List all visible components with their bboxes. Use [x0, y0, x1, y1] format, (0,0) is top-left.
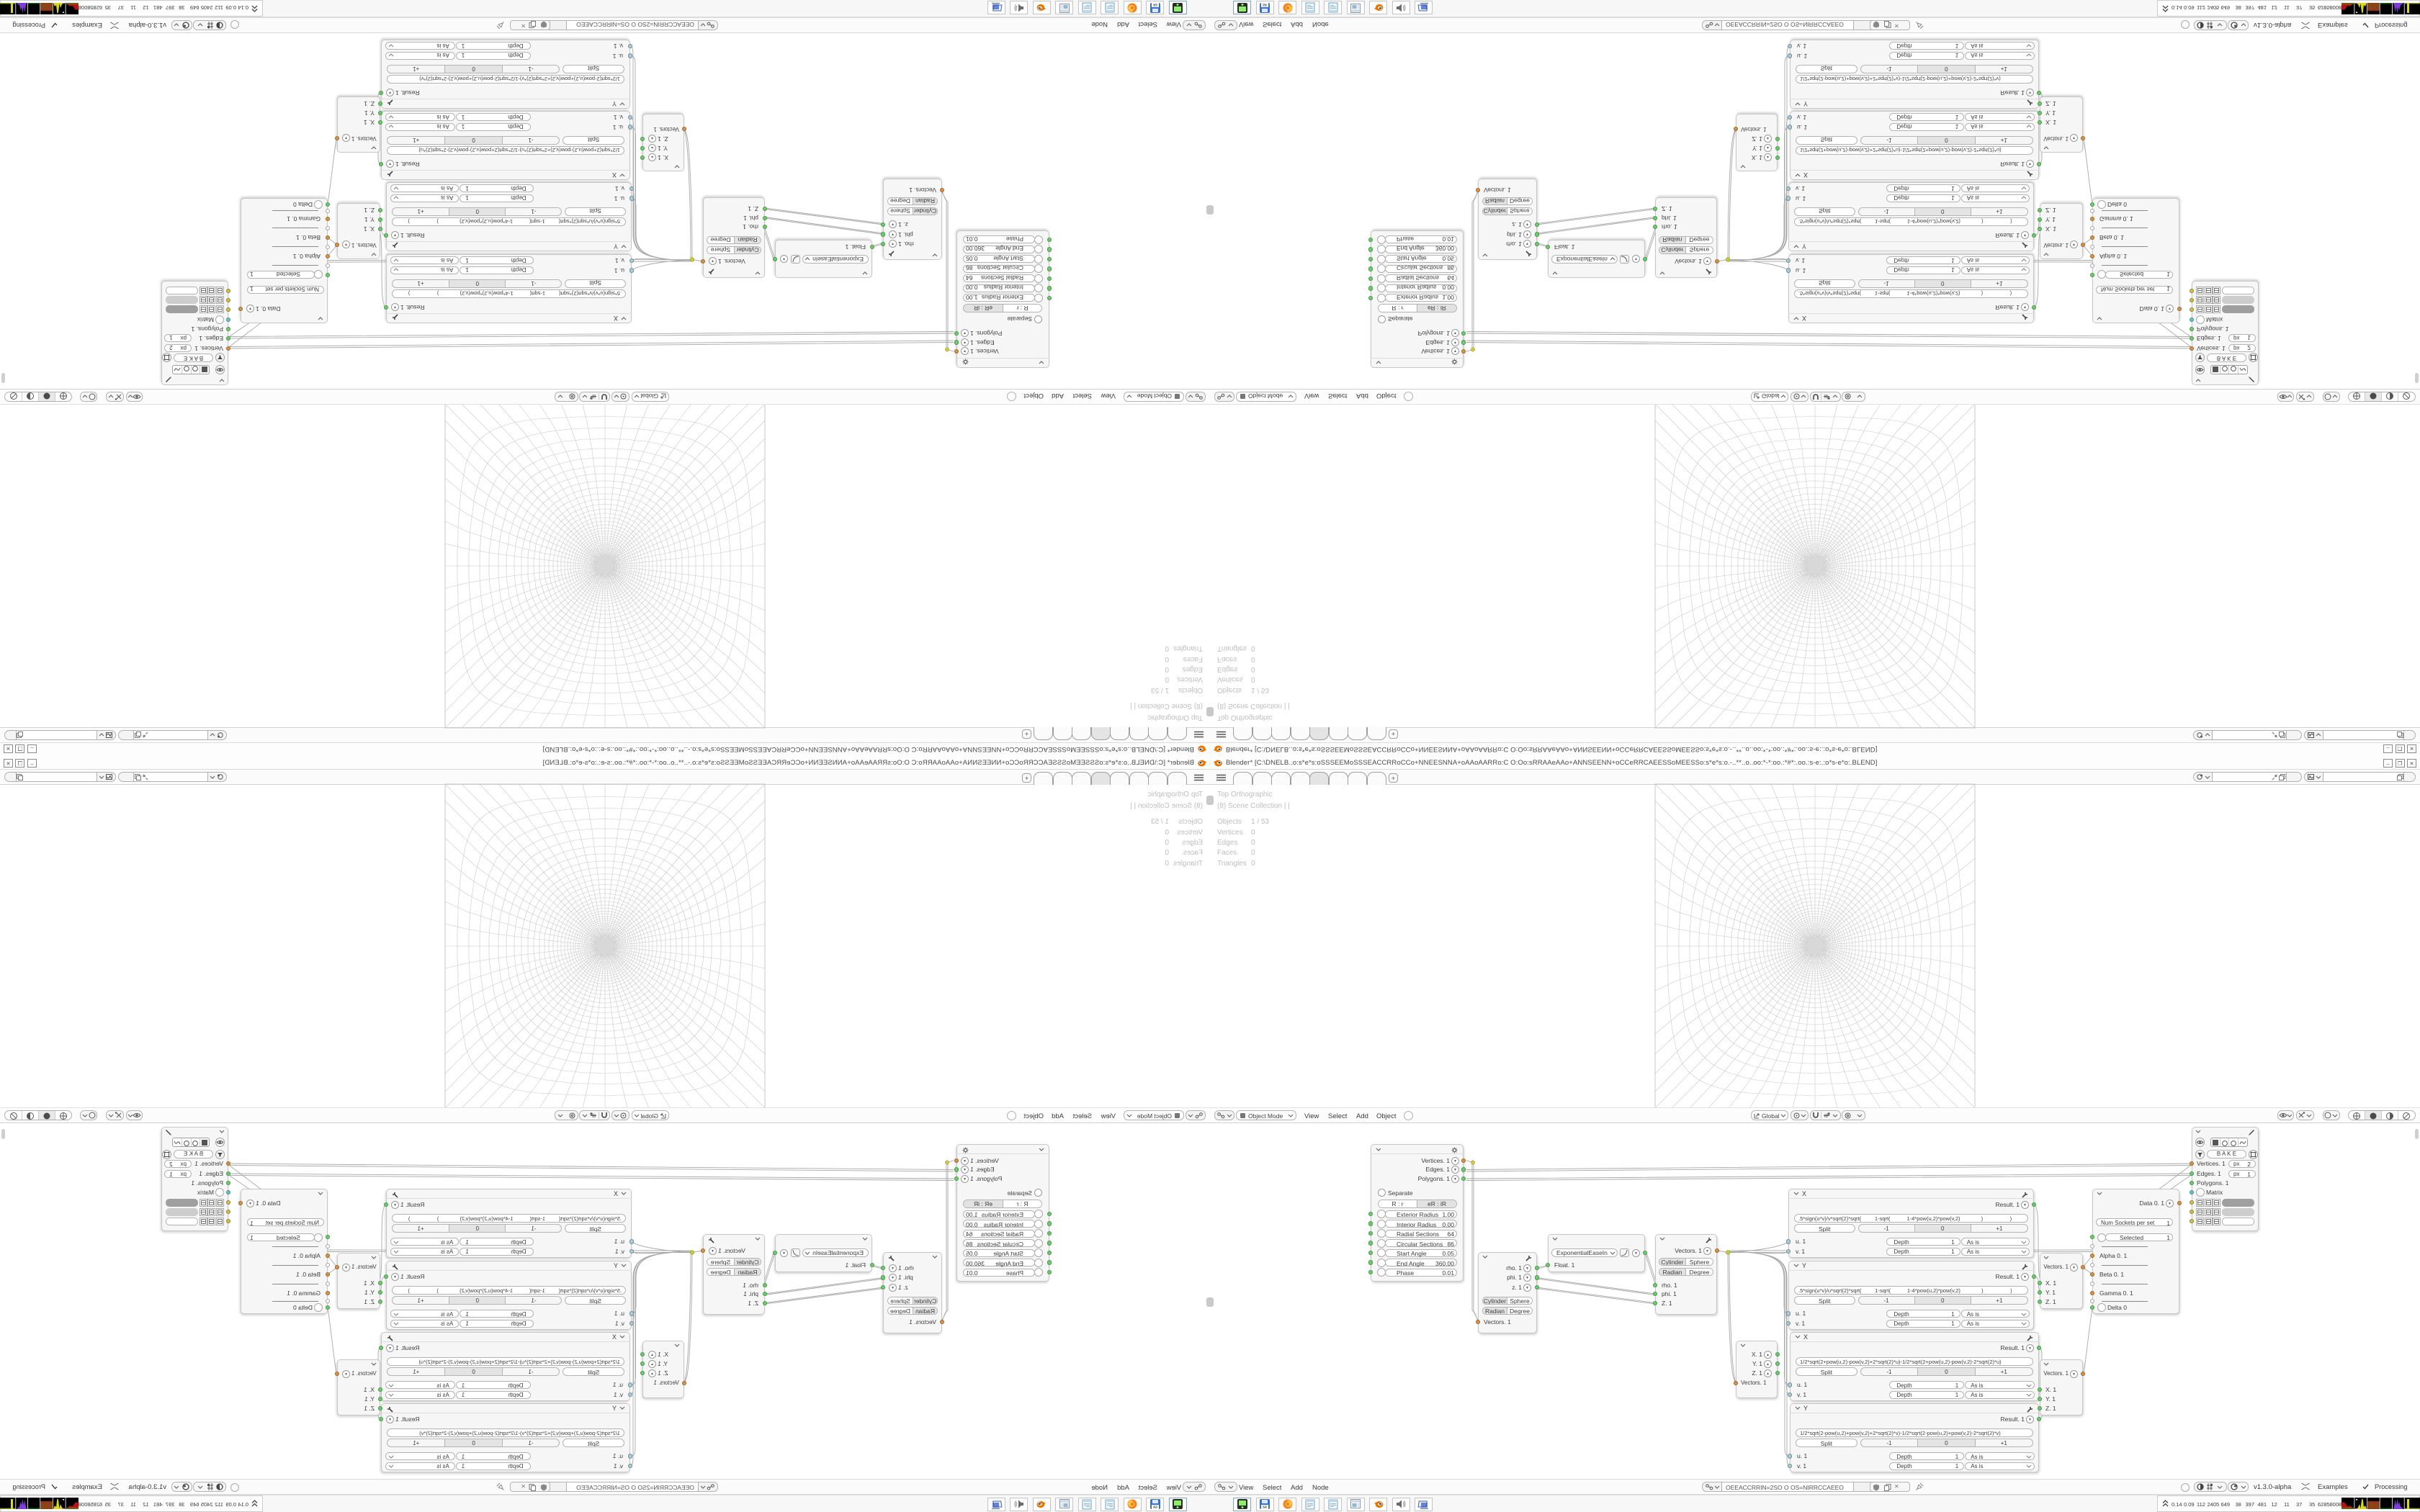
svg-text:64: 64	[1263, 1506, 1267, 1510]
svg-text:64: 64	[1263, 2, 1267, 6]
svg-text:64: 64	[1153, 2, 1157, 6]
svg-text:64: 64	[1153, 1506, 1157, 1510]
